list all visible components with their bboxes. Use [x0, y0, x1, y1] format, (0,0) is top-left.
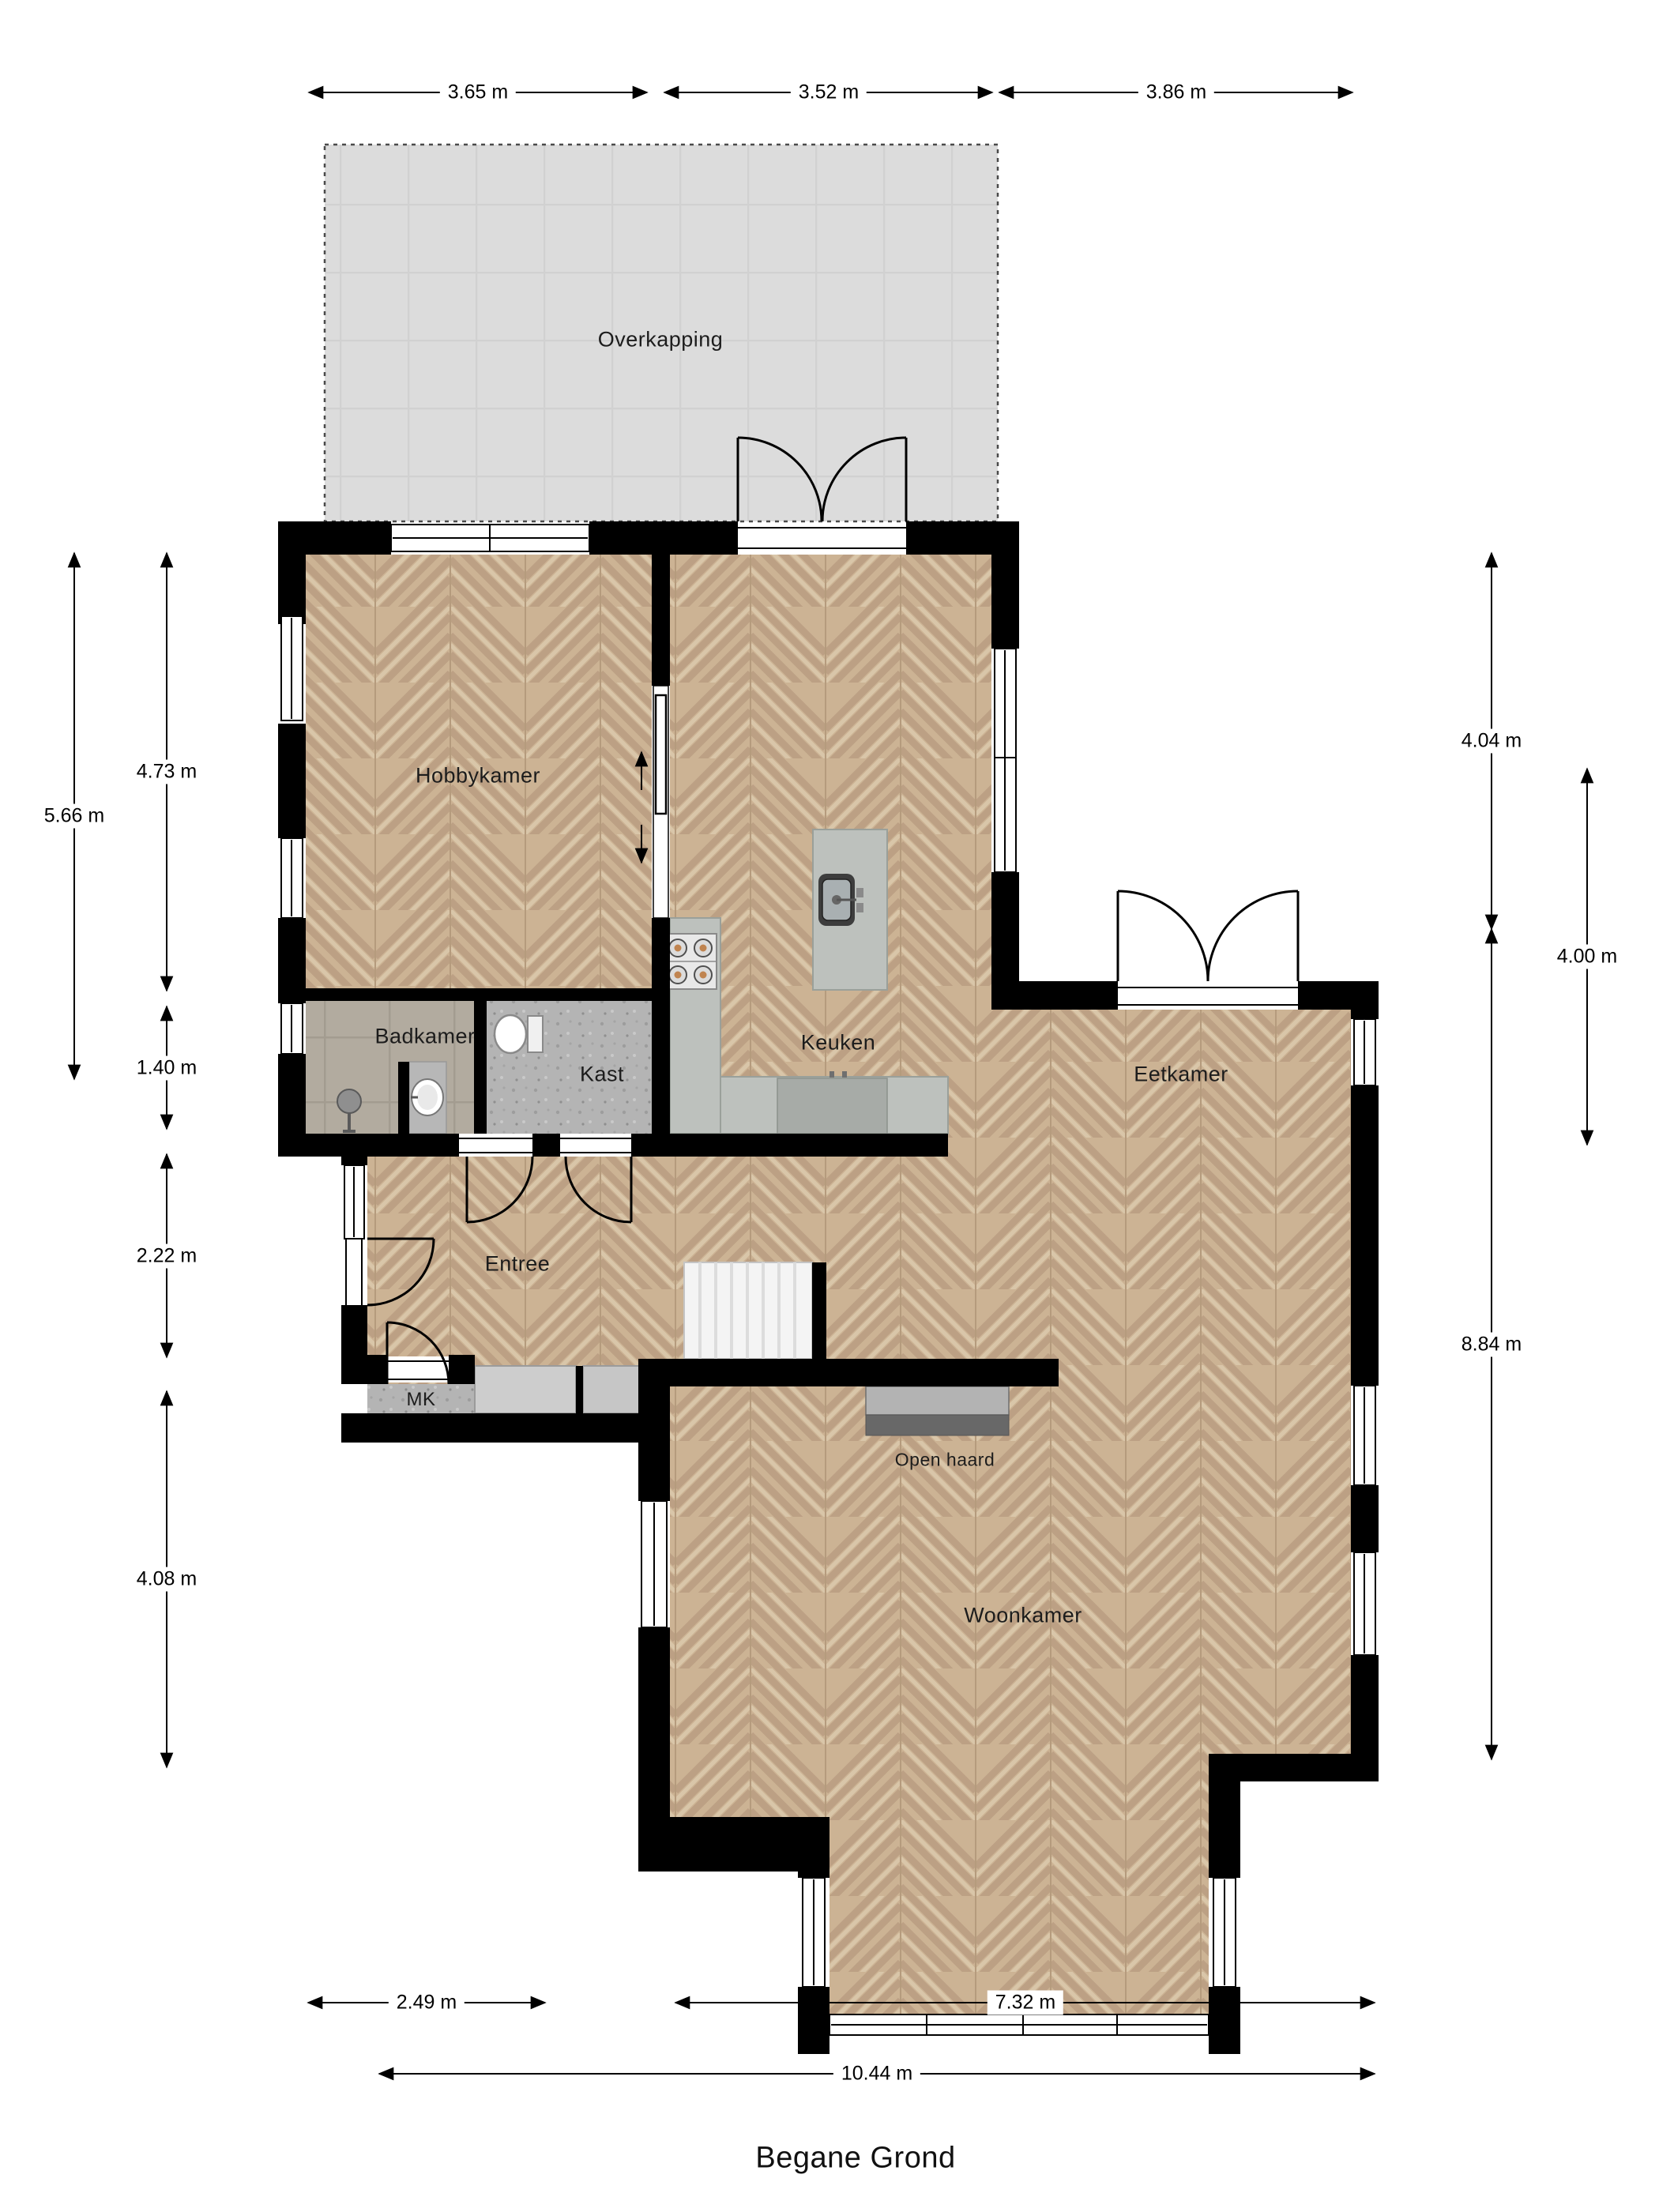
- floorplan-page: Overkapping Hobbykamer Badkamer Kast Keu…: [0, 0, 1659, 2212]
- room-label-eetkamer: Eetkamer: [1134, 1063, 1228, 1087]
- washbasin: [409, 1062, 446, 1134]
- dim-left-4: 4.08 m: [129, 1567, 205, 1592]
- fireplace: [866, 1386, 1009, 1435]
- toilet: [495, 1015, 543, 1053]
- dim-right-1: 4.04 m: [1454, 729, 1529, 754]
- room-label-badkamer: Badkamer: [374, 1025, 475, 1049]
- dim-left-2: 1.40 m: [129, 1056, 205, 1081]
- room-label-mk: MK: [407, 1389, 436, 1411]
- dim-left-1: 4.73 m: [129, 760, 205, 784]
- dim-right-3: 4.00 m: [1549, 945, 1625, 969]
- dim-top-3: 3.86 m: [1138, 81, 1214, 105]
- dim-top-2: 3.52 m: [791, 81, 867, 105]
- dim-right-2: 8.84 m: [1454, 1333, 1529, 1357]
- room-label-entree: Entree: [485, 1252, 551, 1277]
- floorplan-drawing: [0, 0, 1659, 2212]
- dim-bottom-1: 2.49 m: [389, 1991, 465, 2015]
- entree-cabinets: [475, 1366, 640, 1413]
- dim-left-3: 2.22 m: [129, 1244, 205, 1269]
- room-label-overkapping: Overkapping: [598, 328, 724, 352]
- stairs: [684, 1262, 812, 1359]
- dim-bottom-3: 10.44 m: [833, 2062, 920, 2086]
- room-label-keuken: Keuken: [801, 1031, 876, 1055]
- kitchen-counter-bottom: [720, 1071, 948, 1134]
- room-label-open-haard: Open haard: [895, 1450, 995, 1471]
- room-label-kast: Kast: [580, 1063, 624, 1087]
- cooktop: [664, 934, 717, 989]
- badkamer-floor: [306, 1001, 474, 1134]
- plan-title: Begane Grond: [755, 2142, 955, 2176]
- dim-left-outer: 5.66 m: [36, 804, 112, 829]
- room-label-woonkamer: Woonkamer: [964, 1604, 1082, 1628]
- dim-bottom-2: 7.32 m: [987, 1991, 1063, 2015]
- room-label-hobbykamer: Hobbykamer: [416, 764, 540, 788]
- dim-top-1: 3.65 m: [440, 81, 516, 105]
